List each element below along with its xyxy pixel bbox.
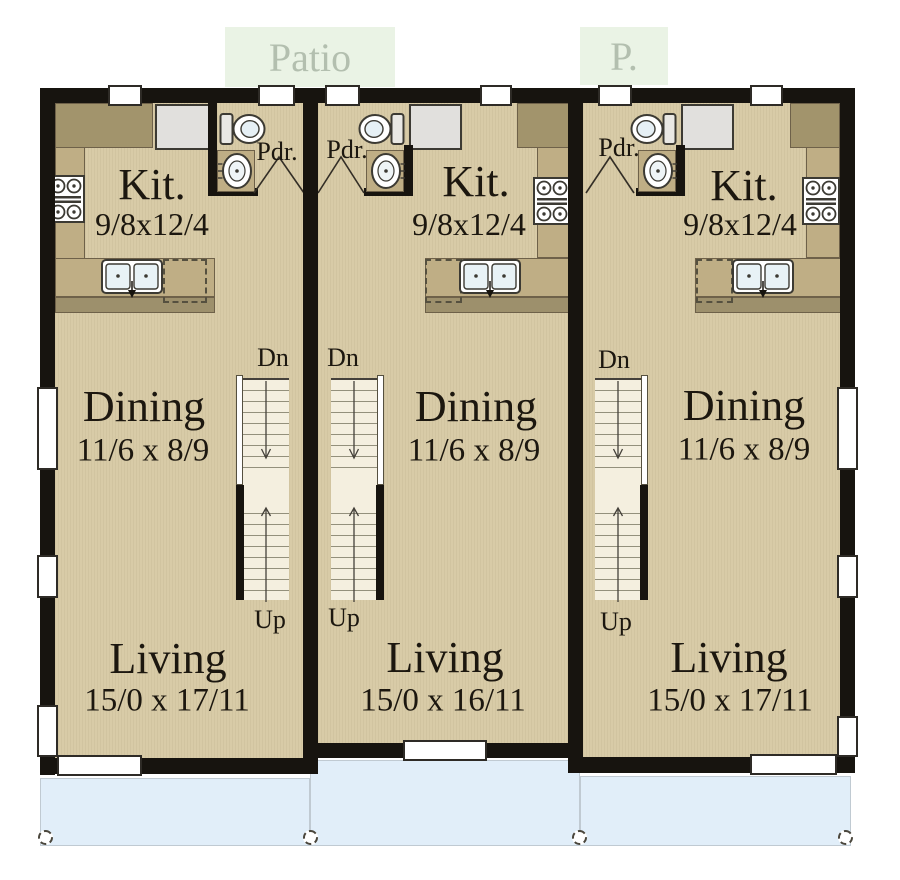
patio-short-label-box: P. xyxy=(580,27,668,85)
stair-wall-unit3 xyxy=(640,485,648,600)
bathroom-sink-icon xyxy=(640,151,678,191)
stair-up-arrow-icon xyxy=(612,506,624,602)
kitchen-label-unit3: Kit. xyxy=(710,164,777,208)
powder-label-unit1: Pdr. xyxy=(256,139,297,165)
stair-up-arrow-icon xyxy=(348,506,360,602)
kitchen-sink-icon xyxy=(101,259,163,299)
deck-unit1 xyxy=(40,778,310,846)
stair-down-arrow-icon xyxy=(612,381,624,463)
stove-icon xyxy=(533,177,571,225)
stair-down-label-unit2: Dn xyxy=(327,345,359,371)
dishwasher-icon xyxy=(696,259,733,303)
window-top-unit2 xyxy=(480,85,512,106)
dining-dims-unit1: 11/6 x 8/9 xyxy=(77,435,210,468)
window-left-dining xyxy=(37,387,58,470)
patio-door-unit2 xyxy=(325,85,360,106)
wall-party-1-2 xyxy=(303,88,318,774)
dining-dims-unit2: 11/6 x 8/9 xyxy=(408,435,541,468)
deck-door-unit1 xyxy=(57,755,142,776)
stair-rail-unit1 xyxy=(236,375,243,485)
living-label-unit2: Living xyxy=(386,636,503,680)
dining-label-unit2: Dining xyxy=(415,385,537,429)
stair-down-arrow-icon xyxy=(260,381,272,463)
window-top-unit1 xyxy=(108,85,142,106)
kitchen-dims-unit1: 9/8x12/4 xyxy=(95,208,209,240)
dishwasher-icon xyxy=(425,259,462,303)
patio-label: Patio xyxy=(269,34,351,81)
refrigerator-icon xyxy=(409,104,462,150)
kitchen-counter-top-unit1 xyxy=(55,103,153,148)
living-dims-unit1: 15/0 x 17/11 xyxy=(84,685,250,718)
window-left-mid xyxy=(37,555,58,598)
bathroom-sink-icon xyxy=(217,151,255,191)
stair-up-label-unit2: Up xyxy=(328,605,360,631)
dining-label-unit3: Dining xyxy=(683,384,805,428)
patio-short-label: P. xyxy=(610,33,638,80)
living-label-unit1: Living xyxy=(109,637,226,681)
living-label-unit3: Living xyxy=(670,636,787,680)
corner-marker xyxy=(572,830,587,845)
stair-down-label-unit1: Dn xyxy=(257,345,289,371)
kitchen-dims-unit2: 9/8x12/4 xyxy=(412,208,526,240)
window-top-unit3 xyxy=(750,85,783,106)
stove-icon xyxy=(802,177,840,225)
patio-door-unit3 xyxy=(598,85,632,106)
kitchen-label-unit2: Kit. xyxy=(442,160,509,204)
kitchen-counter-top-unit2 xyxy=(517,103,570,148)
kitchen-label-unit1: Kit. xyxy=(118,163,185,207)
stair-up-arrow-icon xyxy=(260,506,272,602)
corner-marker xyxy=(38,830,53,845)
stair-landing-unit2 xyxy=(331,468,377,503)
kitchen-sink-icon xyxy=(732,259,794,299)
kitchen-counter-top-unit3 xyxy=(790,103,840,148)
stair-landing-unit1 xyxy=(243,468,289,503)
stair-rail-unit3 xyxy=(641,375,648,485)
floor-plan: Patio P. xyxy=(0,0,900,880)
stair-wall-unit1 xyxy=(236,485,244,600)
kitchen-sink-icon xyxy=(459,259,521,299)
window-right-dining xyxy=(837,387,858,470)
stair-wall-unit2 xyxy=(376,485,384,600)
dining-dims-unit3: 11/6 x 8/9 xyxy=(678,434,811,467)
window-right-mid xyxy=(837,555,858,598)
stair-rail-unit2 xyxy=(377,375,384,485)
living-dims-unit3: 15/0 x 17/11 xyxy=(647,685,813,718)
refrigerator-icon xyxy=(681,104,734,150)
powder-wall-unit1 xyxy=(208,103,217,196)
living-dims-unit2: 15/0 x 16/11 xyxy=(360,685,526,718)
kitchen-dims-unit3: 9/8x12/4 xyxy=(683,208,797,240)
powder-label-unit3: Pdr. xyxy=(598,135,639,161)
stair-up-label-unit1: Up xyxy=(254,607,286,633)
corner-marker xyxy=(838,830,853,845)
deck-unit2 xyxy=(310,760,580,846)
refrigerator-icon xyxy=(155,104,210,150)
wall-party-2-3 xyxy=(568,88,583,773)
deck-unit3 xyxy=(580,776,851,846)
dining-label-unit1: Dining xyxy=(83,385,205,429)
stair-landing-unit3 xyxy=(595,468,641,503)
corner-marker xyxy=(303,830,318,845)
deck-door-unit2 xyxy=(403,740,487,761)
patio-label-box: Patio xyxy=(225,27,395,87)
powder-label-unit2: Pdr. xyxy=(326,137,367,163)
window-right-living xyxy=(837,716,858,757)
stair-down-label-unit3: Dn xyxy=(598,347,630,373)
dishwasher-icon xyxy=(163,259,207,303)
deck-door-unit3 xyxy=(750,754,837,775)
wall-top xyxy=(40,88,855,103)
stair-up-label-unit3: Up xyxy=(600,609,632,635)
window-left-living xyxy=(37,705,58,757)
stair-down-arrow-icon xyxy=(348,381,360,463)
patio-door-unit1 xyxy=(258,85,295,106)
bathroom-sink-icon xyxy=(368,151,406,191)
